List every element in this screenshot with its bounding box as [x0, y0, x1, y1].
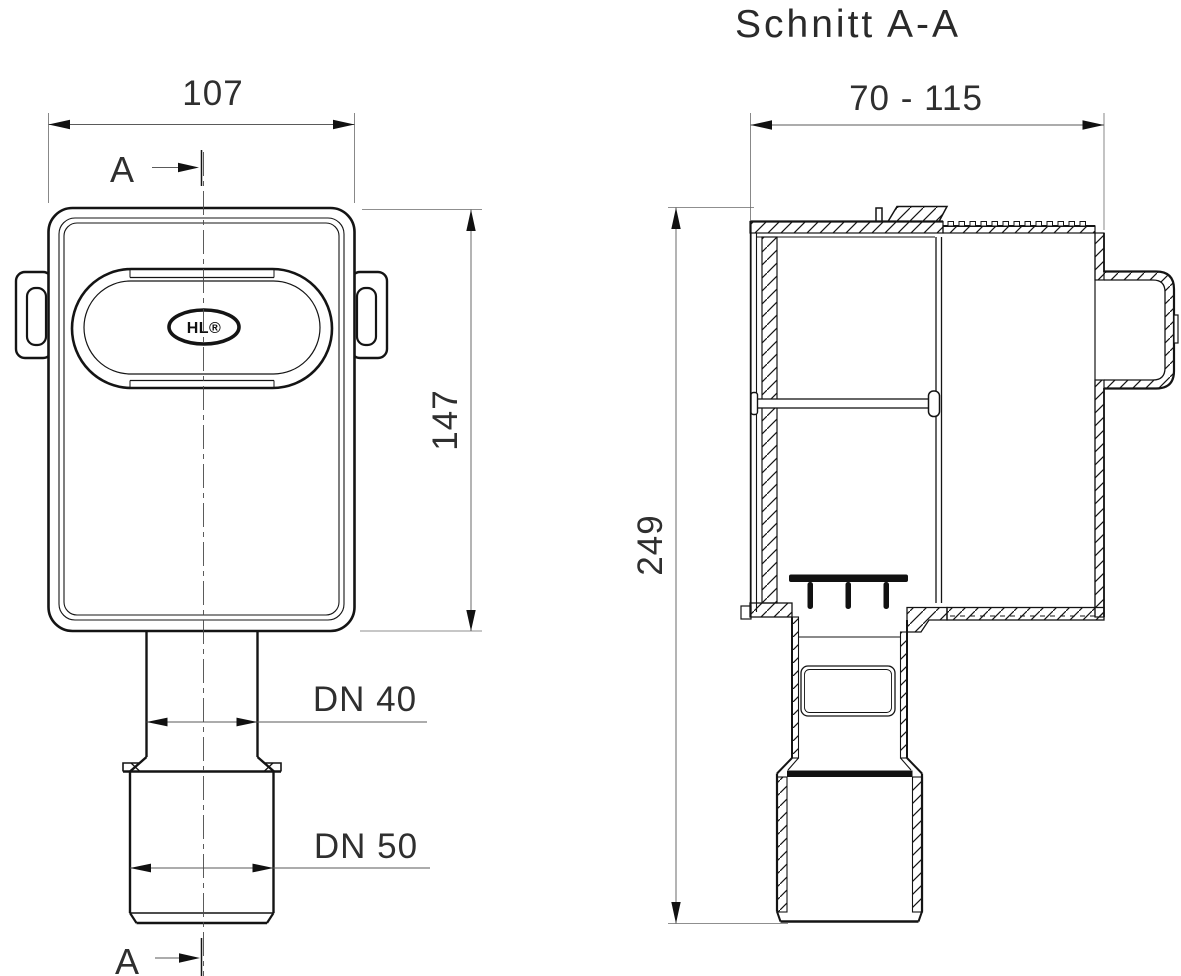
section-letter-bottom: A — [115, 941, 139, 976]
inlet-spigot — [1104, 272, 1178, 389]
section-view: Schnitt A-A 70 - 115 249 — [631, 3, 1178, 924]
housing-section — [741, 207, 1104, 633]
mounting-tab-left — [16, 272, 52, 358]
spigot-notch — [1174, 315, 1178, 343]
arrow-right-icon — [333, 120, 355, 129]
dim-width-range-label: 70 - 115 — [849, 79, 983, 118]
dim-height-249-label: 249 — [631, 514, 670, 575]
dim-dn50-label: DN 50 — [314, 827, 418, 866]
arrow-up-icon — [466, 210, 475, 232]
tail-pipe — [792, 617, 907, 758]
dim-height-label: 147 — [426, 389, 465, 450]
dim-width-label: 107 — [182, 74, 243, 113]
dim-dn40-label: DN 40 — [313, 680, 417, 719]
section-title: Schnitt A-A — [735, 3, 961, 46]
section-marker-bottom: A — [115, 938, 202, 976]
inner-sleeve — [801, 666, 895, 716]
brand-logo: HL® — [169, 310, 239, 344]
drawing-page: 107 A — [0, 0, 1181, 976]
clip-tab — [876, 208, 882, 222]
brand-logo-text: HL® — [187, 320, 222, 337]
mounting-tab-right — [351, 272, 387, 358]
float-pin — [751, 391, 940, 417]
outlet-pipe-dn40 — [147, 631, 258, 757]
technical-drawing: 107 A — [0, 0, 1181, 976]
section-arrow-top-icon — [178, 163, 199, 172]
front-view: 107 A — [16, 74, 482, 976]
valve-membrane — [789, 575, 908, 610]
section-arrow-bottom-icon — [179, 953, 200, 962]
screw-cap — [943, 222, 1095, 234]
arrow-down-icon — [466, 610, 475, 631]
outlet-bracket — [907, 608, 947, 633]
dim-dn50: DN 50 — [130, 827, 430, 872]
section-marker-top: A — [110, 149, 202, 190]
lower-socket — [777, 758, 923, 922]
section-letter-top: A — [110, 149, 134, 190]
dim-dn40: DN 40 — [147, 680, 428, 726]
ratchet-clip — [888, 207, 947, 222]
collar — [123, 757, 281, 772]
gasket-band — [787, 771, 913, 778]
arrow-left-icon — [49, 120, 71, 129]
outlet-pipe-dn50 — [130, 772, 274, 924]
